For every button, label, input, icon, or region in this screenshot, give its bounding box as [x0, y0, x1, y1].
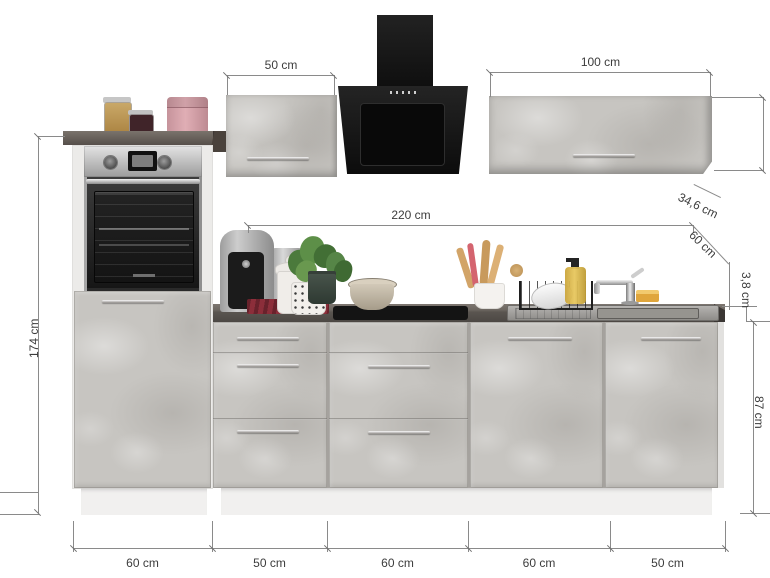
tall-unit-door-handle — [102, 300, 164, 303]
dim-ext — [490, 72, 491, 97]
range-hood-glass — [360, 103, 445, 166]
drawer-divider — [213, 418, 327, 420]
dim-label-worktop-depth: 60 cm — [686, 228, 719, 261]
door-handle — [508, 337, 572, 340]
plant-pot — [308, 271, 336, 304]
base-unit-50 — [605, 322, 718, 488]
oven-brand-text — [133, 274, 155, 277]
oven-rack-line-2 — [99, 244, 189, 246]
utensil-crock — [474, 283, 505, 309]
drawer-handle — [237, 430, 299, 433]
door-handle — [641, 337, 701, 340]
dim-line-3-8 — [746, 306, 747, 322]
dim-ext — [714, 170, 763, 171]
oven-display — [128, 151, 157, 171]
dim-ext — [0, 492, 39, 493]
wall-cabinet-right-handle — [573, 154, 635, 157]
round-brush — [510, 264, 523, 277]
kitchen-dimension-diagram: 50 cm 100 cm 34,6 cm 220 cm 60 cm 3,8 cm… — [0, 0, 770, 578]
wall-cabinet-left — [226, 95, 337, 177]
sponge — [636, 290, 659, 302]
pink-canister — [167, 97, 208, 135]
faucet-spout-tip — [594, 283, 600, 294]
wall-cabinet-left-handle — [247, 157, 309, 160]
dim-label-tall-height: 174 cm — [27, 319, 41, 358]
drawer-divider — [213, 352, 327, 354]
drawer-handle — [368, 365, 430, 368]
dim-label-base-width-2: 50 cm — [212, 556, 327, 570]
dim-ext — [710, 72, 711, 97]
soap-bottle — [565, 267, 586, 304]
drawer-handle — [368, 431, 430, 434]
base-unit-drawers-50 — [213, 322, 327, 488]
dim-ext — [746, 321, 770, 322]
oven-knob-left — [104, 156, 117, 169]
drawer-handle — [237, 364, 299, 367]
tall-unit-worktop — [63, 131, 222, 145]
oven-handle — [86, 179, 200, 184]
pink-canister-lid — [167, 97, 208, 108]
oven-knob-right — [158, 156, 171, 169]
drawer-handle — [237, 337, 299, 340]
dim-ext — [729, 262, 730, 310]
dim-line-bottom — [73, 548, 726, 549]
tall-unit-door — [74, 291, 211, 488]
base-run-plinth — [221, 488, 712, 515]
drawer-divider — [329, 352, 468, 354]
dim-ext — [712, 97, 763, 98]
range-hood-buttons — [390, 91, 417, 94]
faucet-lever — [630, 267, 645, 279]
oven-glass — [94, 191, 194, 283]
base-unit-sink-60 — [470, 322, 603, 488]
dim-ext — [0, 514, 39, 515]
dim-label-wall-left-width: 50 cm — [227, 58, 335, 72]
dim-line-34-6 — [694, 184, 721, 198]
dim-line-50 — [227, 75, 335, 76]
dim-label-base-height: 87 cm — [752, 396, 766, 429]
dim-line-wall-height — [763, 97, 764, 171]
tall-unit-plinth — [81, 488, 207, 515]
range-hood-chimney — [377, 15, 433, 86]
dim-line-100 — [490, 72, 711, 73]
dim-line-220 — [248, 225, 694, 226]
dim-label-base-width-3: 60 cm — [327, 556, 468, 570]
dim-ext — [38, 136, 65, 137]
dim-label-worktop-length: 220 cm — [301, 208, 521, 222]
base-unit-hob-60 — [329, 322, 468, 488]
base-run-side-panel — [718, 322, 724, 488]
sink-basin — [597, 308, 699, 319]
dim-label-base-width-5: 50 cm — [610, 556, 725, 570]
oven-display-screen — [132, 155, 153, 167]
dim-label-worktop-thickness: 3,8 cm — [739, 272, 753, 308]
dim-label-base-width-4: 60 cm — [468, 556, 610, 570]
drawer-divider — [329, 418, 468, 420]
coffee-machine-logo — [242, 260, 250, 268]
oven-rack-line-1 — [99, 228, 189, 230]
dim-label-wall-right-width: 100 cm — [490, 55, 711, 69]
cooktop — [333, 306, 468, 320]
wall-cabinet-right — [489, 96, 712, 174]
dim-label-base-width-1: 60 cm — [73, 556, 212, 570]
